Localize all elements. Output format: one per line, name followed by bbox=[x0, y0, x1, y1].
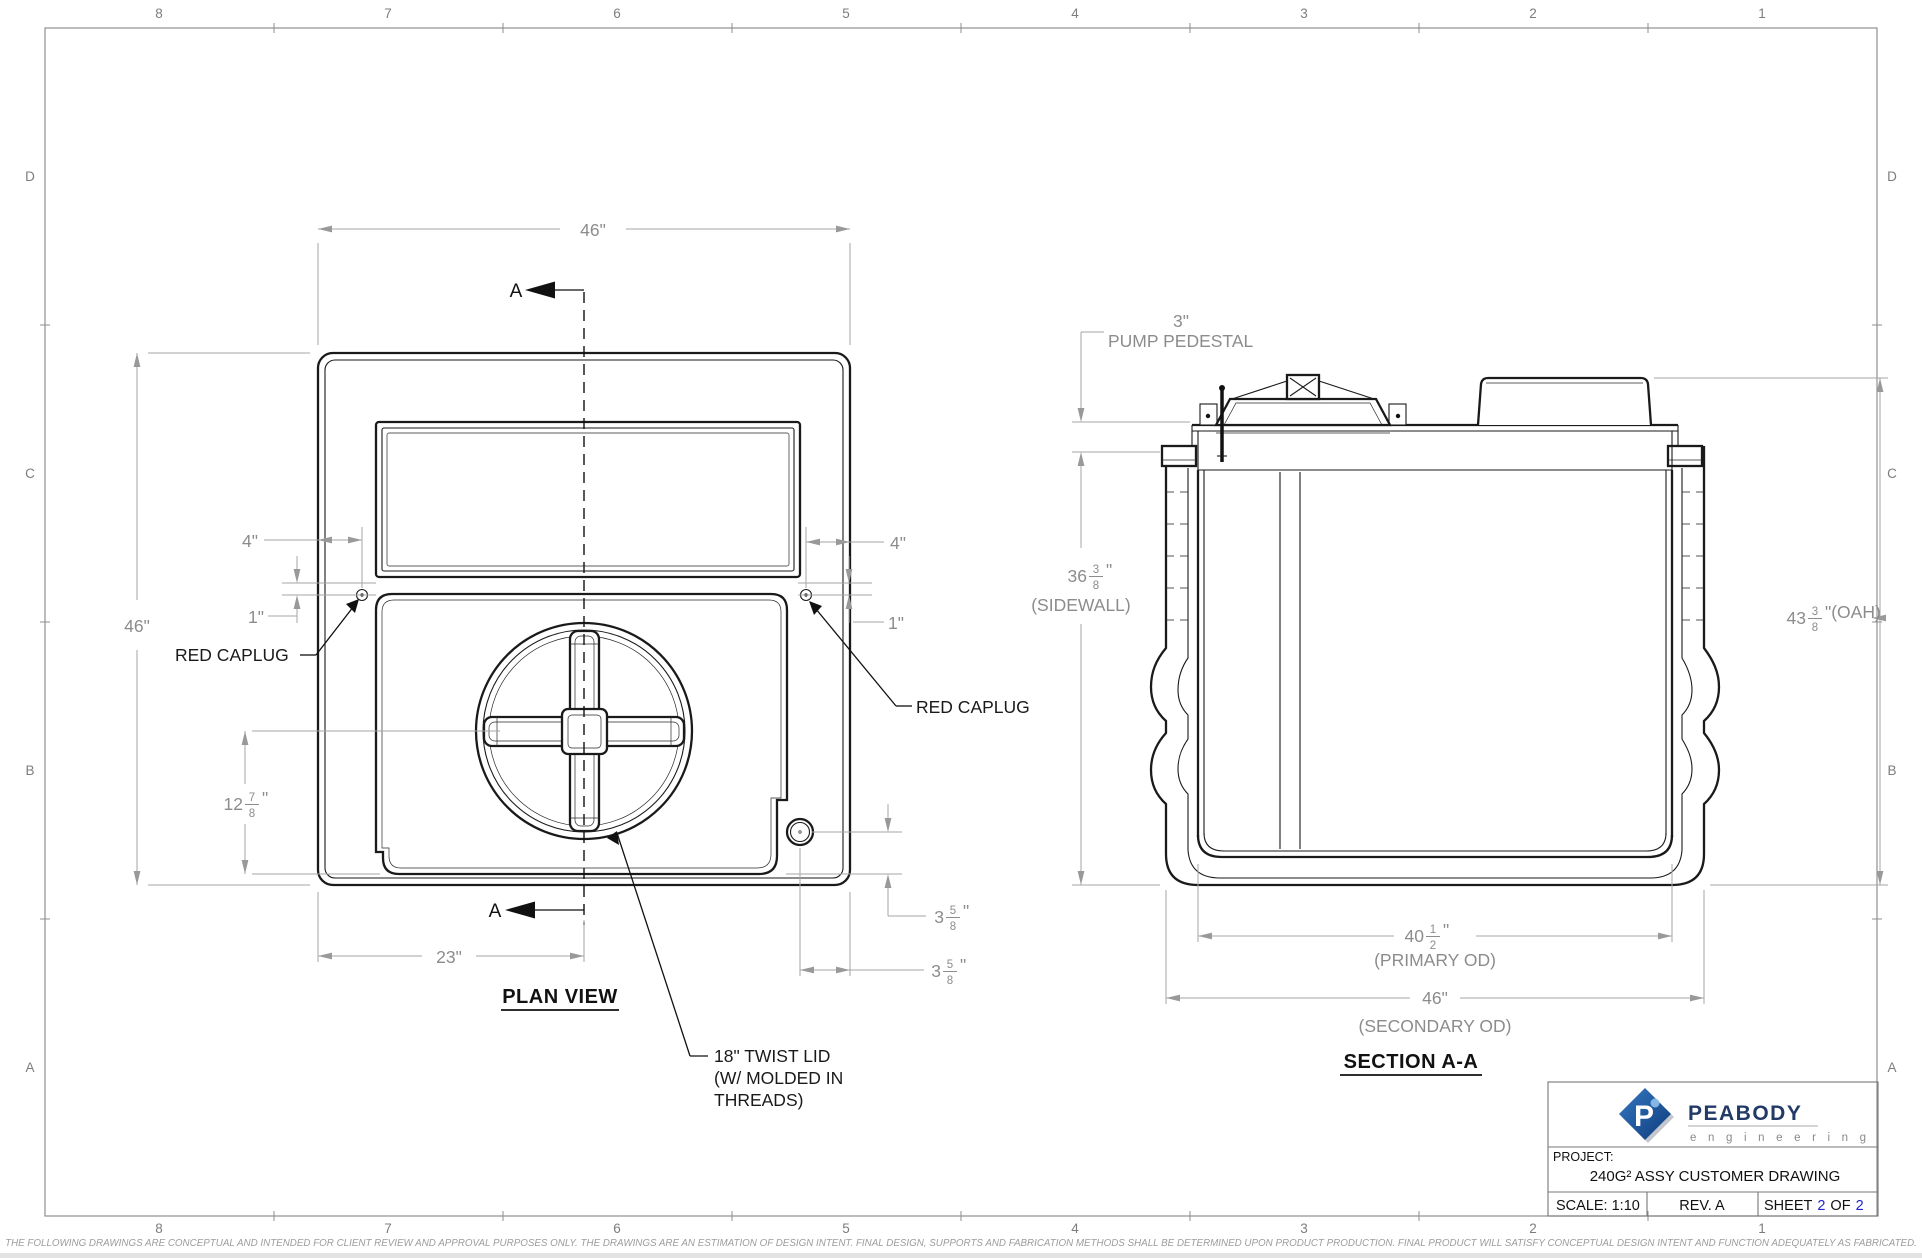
drawing-frame: 8 7 6 5 4 3 2 1 8 7 6 5 4 3 2 1 D C B A … bbox=[25, 6, 1897, 1236]
drain-fitting-center bbox=[798, 830, 802, 834]
zone-number: 7 bbox=[384, 6, 392, 21]
section-view: 3" PUMP PEDESTAL 36 3 8 " (SIDEWALL) bbox=[1031, 311, 1888, 1075]
red-caplug-label: RED CAPLUG bbox=[916, 697, 1030, 717]
dim-den: 8 bbox=[1093, 580, 1099, 592]
zone-number: 4 bbox=[1071, 1221, 1079, 1236]
zone-number: 2 bbox=[1529, 6, 1537, 21]
dim-whole: 40 bbox=[1405, 926, 1425, 946]
section-marker-top: A bbox=[510, 281, 584, 302]
zone-ticks bbox=[40, 23, 1882, 1221]
zone-letter: D bbox=[1887, 169, 1897, 184]
project-name: 240G² ASSY CUSTOMER DRAWING bbox=[1590, 1168, 1841, 1185]
wall-rib-ticks bbox=[1166, 492, 1704, 620]
dim-suffix: " bbox=[1443, 920, 1449, 940]
dim-suffix: "(OAH) bbox=[1825, 602, 1881, 622]
section-marker-letter: A bbox=[489, 901, 502, 922]
dim-fitting-vertical: 3 5 8 " bbox=[786, 804, 969, 933]
zone-number: 3 bbox=[1300, 1221, 1308, 1236]
top-recess-outer bbox=[376, 422, 800, 577]
zone-number: 2 bbox=[1529, 1221, 1537, 1236]
red-caplug-label: RED CAPLUG bbox=[175, 645, 289, 665]
border-rect bbox=[45, 28, 1877, 1216]
project-label: PROJECT: bbox=[1553, 1150, 1613, 1164]
plan-view: A A 46" 46" 4" bbox=[124, 220, 1030, 1110]
dim-suffix: " bbox=[1106, 560, 1112, 580]
drawing-sheet: 8 7 6 5 4 3 2 1 8 7 6 5 4 3 2 1 D C B A … bbox=[0, 0, 1922, 1258]
dim-suffix: " bbox=[262, 788, 268, 808]
zone-number: 6 bbox=[613, 1221, 621, 1236]
zone-letter: A bbox=[1887, 1060, 1896, 1075]
zone-number: 4 bbox=[1071, 6, 1079, 21]
dim-whole: 3 bbox=[931, 961, 941, 981]
zone-letter: A bbox=[25, 1060, 34, 1075]
zone-number: 1 bbox=[1758, 6, 1766, 21]
zone-number: 5 bbox=[842, 1221, 850, 1236]
dim-text: 4" bbox=[242, 531, 258, 551]
dim-lid-center: 12 7 8 " bbox=[224, 731, 500, 874]
red-caplug-callout-left: RED CAPLUG bbox=[175, 599, 359, 665]
dim-label: (SIDEWALL) bbox=[1031, 595, 1131, 615]
dim-suffix: " bbox=[960, 955, 966, 975]
zone-number: 7 bbox=[384, 1221, 392, 1236]
dim-height-left: 46" bbox=[124, 353, 310, 885]
twist-lid-label-line1: 18" TWIST LID bbox=[714, 1046, 830, 1066]
dim-num: 5 bbox=[947, 959, 953, 971]
primary-tank bbox=[1198, 470, 1672, 857]
dim-label: (PRIMARY OD) bbox=[1374, 950, 1496, 970]
dim-text: 46" bbox=[580, 220, 606, 240]
plan-view-title: PLAN VIEW bbox=[502, 986, 618, 1008]
logo-drop-icon bbox=[1651, 1099, 1660, 1108]
dim-whole: 36 bbox=[1068, 566, 1087, 586]
rim-flange-right bbox=[1668, 446, 1702, 466]
dim-text: 4" bbox=[890, 533, 906, 553]
dim-num: 5 bbox=[950, 905, 956, 917]
dim-primary-od: 40 1 2 " (PRIMARY OD) bbox=[1198, 864, 1672, 970]
dim-whole: 43 bbox=[1787, 608, 1806, 628]
dim-num: 7 bbox=[249, 792, 255, 804]
dim-text: 1" bbox=[248, 607, 264, 627]
section-marker-bottom: A bbox=[489, 901, 584, 922]
twist-lid-label-line3: THREADS) bbox=[714, 1090, 803, 1110]
zone-letter: C bbox=[25, 466, 35, 481]
red-caplug-callout-right: RED CAPLUG bbox=[809, 601, 1030, 717]
dim-num: 3 bbox=[1812, 606, 1818, 618]
zone-letter: C bbox=[1887, 466, 1897, 481]
zone-number: 8 bbox=[155, 1221, 163, 1236]
dim-whole: 12 bbox=[224, 794, 243, 814]
secondary-shell-inner bbox=[1178, 468, 1692, 878]
twist-lid-label-line2: (W/ MOLDED IN bbox=[714, 1068, 843, 1088]
page-bottom-edge bbox=[0, 1253, 1922, 1258]
dim-den: 8 bbox=[249, 808, 255, 820]
zone-labels: 8 7 6 5 4 3 2 1 8 7 6 5 4 3 2 1 D C B A … bbox=[25, 6, 1897, 1236]
revision-value: REV. A bbox=[1679, 1198, 1725, 1214]
twist-lid-section bbox=[1200, 375, 1406, 462]
dim-text: 46" bbox=[124, 616, 150, 636]
dim-text: 1" bbox=[888, 613, 904, 633]
dim-suffix: " bbox=[963, 901, 969, 921]
zone-number: 3 bbox=[1300, 6, 1308, 21]
dim-caplug-inset-right: 4" bbox=[806, 527, 906, 588]
top-recess-mid bbox=[382, 428, 794, 571]
rim-flange-left bbox=[1162, 446, 1196, 466]
brand-name: PEABODY bbox=[1688, 1102, 1802, 1125]
peabody-logo-icon: P bbox=[1619, 1088, 1674, 1143]
dim-text: 23" bbox=[436, 947, 462, 967]
secondary-shell-outer bbox=[1151, 446, 1719, 885]
section-marker-letter: A bbox=[510, 281, 523, 302]
tank-top-deck bbox=[1162, 425, 1702, 470]
zone-number: 1 bbox=[1758, 1221, 1766, 1236]
dim-den: 8 bbox=[947, 975, 953, 987]
dim-caplug-inset-left: 4" bbox=[242, 527, 362, 588]
scale-value: SCALE: 1:10 bbox=[1556, 1198, 1640, 1214]
zone-number: 5 bbox=[842, 6, 850, 21]
zone-letter: B bbox=[1887, 763, 1896, 778]
dim-text: 3" bbox=[1173, 311, 1189, 331]
top-recess-inner bbox=[387, 433, 789, 566]
zone-letter: D bbox=[25, 169, 35, 184]
dim-label: (SECONDARY OD) bbox=[1359, 1016, 1512, 1036]
dim-sidewall: 36 3 8 " (SIDEWALL) bbox=[1031, 466, 1160, 885]
disclaimer-text: THE FOLLOWING DRAWINGS ARE CONCEPTUAL AN… bbox=[5, 1238, 1917, 1249]
dim-width-top: 46" bbox=[318, 220, 850, 345]
dim-num: 3 bbox=[1093, 564, 1099, 576]
dim-lid-offset: 23" bbox=[318, 892, 584, 967]
pedestal-cover bbox=[1478, 378, 1651, 425]
sheet-value: SHEET2OF2 bbox=[1764, 1198, 1864, 1214]
zone-number: 6 bbox=[613, 6, 621, 21]
title-block: P PEABODY e n g i n e e r i n g PROJECT:… bbox=[1548, 1082, 1878, 1216]
brand-subtitle: e n g i n e e r i n g bbox=[1690, 1132, 1870, 1144]
dim-text: 46" bbox=[1422, 988, 1448, 1008]
dim-num: 1 bbox=[1430, 924, 1436, 936]
pump-pedestal-label: PUMP PEDESTAL bbox=[1108, 331, 1253, 351]
dim-caplug-drop-left: 1" bbox=[248, 556, 376, 627]
dim-den: 8 bbox=[1812, 622, 1818, 634]
section-view-title: SECTION A-A bbox=[1344, 1051, 1479, 1073]
dim-whole: 3 bbox=[934, 907, 944, 927]
dim-den: 8 bbox=[950, 921, 956, 933]
zone-number: 8 bbox=[155, 6, 163, 21]
dim-pump-pedestal: 3" PUMP PEDESTAL bbox=[1072, 311, 1253, 466]
zone-letter: B bbox=[25, 763, 34, 778]
